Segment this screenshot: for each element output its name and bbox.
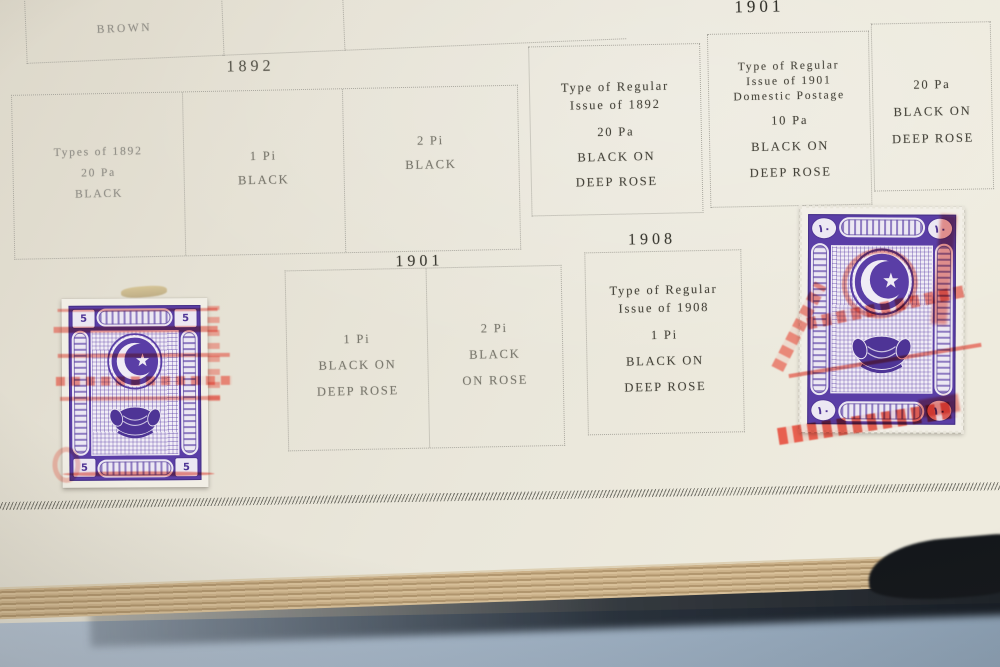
box-top-partial <box>218 0 346 56</box>
box-brown: BROWN <box>22 0 225 64</box>
box-2pi-on-rose: 2 Pi BLACK ON ROSE <box>426 266 565 448</box>
stamp-center-field <box>91 330 180 456</box>
red-overprint-mark <box>52 447 80 483</box>
stamp-album-photo: BROWN 1892 Types of 1892 20 Pa BLACK 1 P… <box>0 0 1000 667</box>
box-text-line: BLACK <box>469 347 521 363</box>
stamp-corner-value: ١٠ <box>811 217 837 239</box>
stamp-left: 5 5 5 5 <box>61 298 208 488</box>
box-1pi-deep-rose: 1 Pi BLACK ON DEEP ROSE <box>286 269 431 451</box>
box-text-line: BLACK <box>405 157 457 173</box>
stamp-cartouche-top <box>839 217 925 237</box>
box-text-line: Domestic Postage <box>733 89 845 103</box>
corner-numeral: ١٠ <box>817 404 830 417</box>
box-text-line: 2 Pi <box>417 133 444 149</box>
red-overprint-streak <box>56 376 232 386</box>
row-1892-boxes: Types of 1892 20 Pa BLACK 1 Pi BLACK 2 P… <box>11 85 521 260</box>
tughra-ornament-icon <box>108 407 163 435</box>
box-text-line: 2 Pi <box>481 321 508 337</box>
crescent-star-icon <box>92 331 179 455</box>
corner-numeral: ١٠ <box>817 222 830 235</box>
box-text-line: BLACK <box>75 188 123 201</box>
row-1901-boxes: 1 Pi BLACK ON DEEP ROSE 2 Pi BLACK ON RO… <box>285 265 566 452</box>
year-header-1892: 1892 <box>165 56 335 77</box>
stamp-cartouche-right <box>181 330 199 455</box>
box-text-line: 1 Pi <box>343 332 370 348</box>
box-text-line: 20 Pa <box>913 77 950 93</box>
box-1pi-black: 1 Pi BLACK <box>182 89 346 255</box>
box-text-line: Issue of 1901 <box>746 74 832 88</box>
box-regular-1908: Type of Regular Issue of 1908 1 Pi BLACK… <box>584 249 745 435</box>
box-text-line: BLACK <box>238 172 290 188</box>
year-header-1901-top: 1901 <box>674 0 844 19</box>
box-text-line: Types of 1892 <box>54 145 143 159</box>
stamp-hinge-residue <box>121 285 168 299</box>
box-text-line: DEEP ROSE <box>624 379 706 396</box>
box-top-partial-edge <box>339 0 626 51</box>
box-text-line: 20 Pa <box>81 167 116 180</box>
box-text-line: Type of Regular <box>561 79 669 96</box>
red-overprint-streak <box>54 326 218 333</box>
box-text-line: 20 Pa <box>597 124 634 140</box>
box-regular-1901: Type of Regular Issue of 1901 Domestic P… <box>707 31 872 208</box>
box-text-line: Issue of 1892 <box>570 97 661 114</box>
box-text-line: BLACK ON <box>626 353 704 370</box>
box-text-line: Type of Regular <box>738 59 840 73</box>
box-text-line: BLACK ON <box>751 138 829 155</box>
stamp-cartouche-left <box>72 331 90 456</box>
box-text-line: DEEP ROSE <box>576 174 658 191</box>
album-page: BROWN 1892 Types of 1892 20 Pa BLACK 1 P… <box>0 0 1000 624</box>
box-text-line: DEEP ROSE <box>892 131 974 148</box>
red-overprint-streak <box>58 353 230 358</box>
box-regular-1892: Type of Regular Issue of 1892 20 Pa BLAC… <box>528 43 703 216</box>
box-text-line: 10 Pa <box>771 113 808 129</box>
stamp-right: ١٠ ١٠ ١٠ ١٠ <box>799 206 964 433</box>
box-text-line: ON ROSE <box>462 373 528 389</box>
year-header-1908: 1908 <box>567 229 737 250</box>
box-text-line: BROWN <box>96 22 152 36</box>
box-text-line: Type of Regular <box>609 282 717 299</box>
stamp-corner-value: ١٠ <box>810 399 836 421</box>
box-types-of-1892: Types of 1892 20 Pa BLACK <box>12 92 186 258</box>
box-text-line: Issue of 1908 <box>618 300 709 317</box>
box-text-line: 1 Pi <box>651 328 678 344</box>
box-text-line: BLACK ON <box>318 357 396 374</box>
corner-numeral: 5 <box>182 313 189 324</box>
box-20pa-deep-rose: 20 Pa BLACK ON DEEP ROSE <box>871 21 994 191</box>
box-text-line: 1 Pi <box>250 149 277 165</box>
box-text-line: BLACK ON <box>893 104 971 121</box>
box-text-line: DEEP ROSE <box>317 383 399 400</box>
box-2pi-black: 2 Pi BLACK <box>342 86 520 252</box>
red-overprint-mark <box>207 306 220 401</box>
corner-numeral: 5 <box>80 313 87 324</box>
box-text-line: DEEP ROSE <box>750 164 832 181</box>
box-text-line: BLACK ON <box>577 149 655 166</box>
